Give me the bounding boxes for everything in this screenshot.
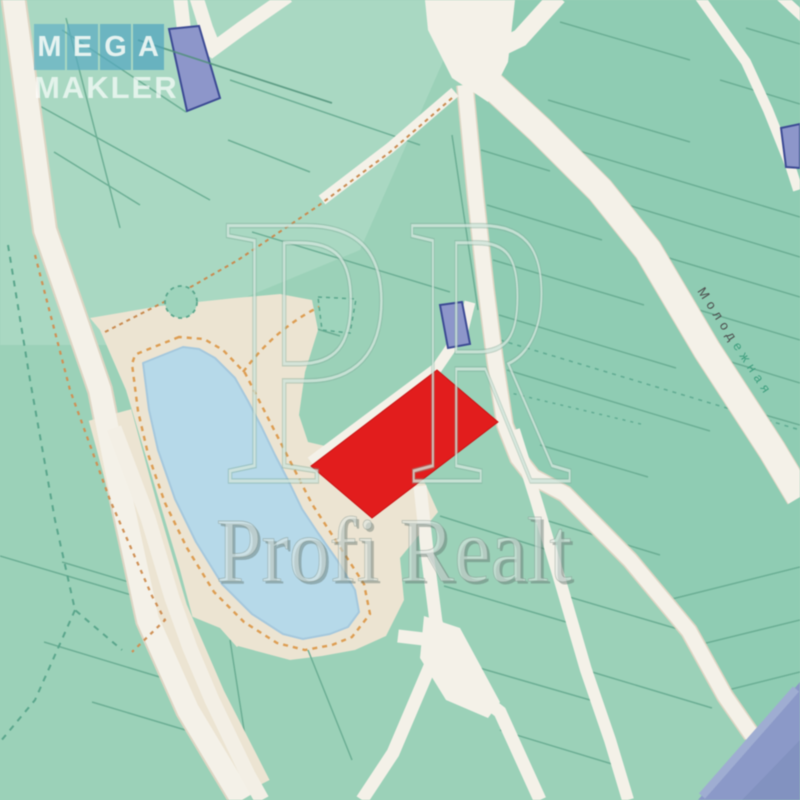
svg-text:E: E: [73, 31, 92, 63]
svg-text:G: G: [104, 31, 127, 63]
svg-text:MAKLER: MAKLER: [34, 70, 179, 105]
svg-text:A: A: [138, 31, 159, 63]
svg-text:M: M: [37, 31, 61, 63]
svg-text:Profi Realt: Profi Realt: [216, 499, 572, 601]
